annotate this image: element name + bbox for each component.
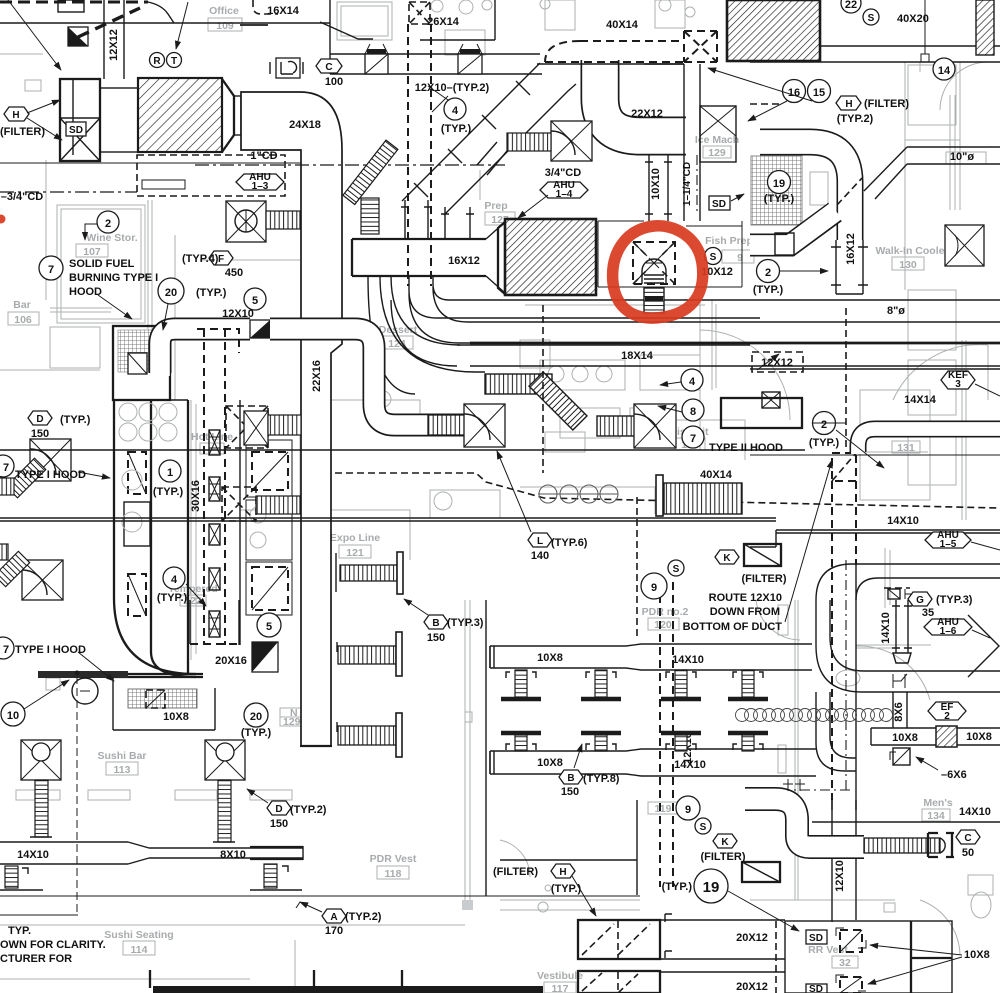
svg-text:(FILTER): (FILTER): [0, 126, 45, 138]
svg-text:B: B: [432, 618, 439, 629]
svg-text:(TYP.): (TYP.): [153, 486, 184, 498]
svg-text:SOLID FUEL: SOLID FUEL: [69, 258, 135, 270]
svg-text:S: S: [673, 564, 680, 575]
svg-text:20X16: 20X16: [215, 655, 247, 667]
svg-text:3/4"CD: 3/4"CD: [545, 167, 581, 179]
svg-text:OWN FOR CLARITY.: OWN FOR CLARITY.: [0, 939, 106, 951]
svg-text:20: 20: [165, 287, 177, 299]
svg-text:16X12: 16X12: [448, 255, 480, 267]
svg-text:130: 130: [899, 259, 917, 271]
svg-text:G: G: [916, 595, 924, 606]
svg-text:2: 2: [765, 267, 771, 279]
svg-text:SD: SD: [712, 199, 726, 210]
svg-text:8X6: 8X6: [893, 702, 905, 722]
svg-text:19: 19: [773, 178, 785, 190]
svg-text:D: D: [275, 804, 282, 815]
svg-text:14X10: 14X10: [959, 806, 991, 818]
svg-text:(TYP.): (TYP.): [196, 287, 227, 299]
svg-text:10X8: 10X8: [964, 949, 990, 961]
svg-text:Expo Line: Expo Line: [330, 532, 380, 544]
svg-text:(FILTER): (FILTER): [700, 851, 745, 863]
svg-text:10X8: 10X8: [163, 711, 189, 723]
svg-text:14X10: 14X10: [674, 759, 706, 771]
svg-text:5: 5: [252, 295, 258, 307]
svg-text:15: 15: [813, 87, 825, 99]
svg-text:2: 2: [944, 711, 950, 722]
svg-text:B: B: [567, 773, 574, 784]
svg-text:8"ø: 8"ø: [887, 305, 905, 317]
svg-text:1–3: 1–3: [252, 181, 269, 192]
svg-text:12X10–(TYP.2): 12X10–(TYP.2): [415, 82, 490, 94]
svg-text:22X12: 22X12: [631, 108, 663, 120]
svg-text:20X12: 20X12: [736, 981, 768, 993]
svg-text:16: 16: [788, 87, 800, 99]
svg-text:Walk-In Cooler: Walk-In Cooler: [875, 245, 948, 257]
svg-text:Wine Stor.: Wine Stor.: [86, 232, 137, 244]
svg-text:R: R: [153, 56, 161, 67]
svg-text:7: 7: [3, 462, 9, 474]
svg-text:40X20: 40X20: [897, 13, 929, 25]
svg-text:8X10: 8X10: [220, 849, 246, 861]
svg-text:4: 4: [689, 376, 696, 388]
svg-text:K: K: [723, 553, 731, 564]
svg-text:(TYP.): (TYP.): [809, 437, 840, 449]
svg-text:(TYP.): (TYP.): [551, 883, 582, 895]
svg-text:26X14: 26X14: [427, 16, 460, 28]
svg-text:3: 3: [955, 379, 961, 390]
svg-text:Prep: Prep: [484, 200, 507, 212]
svg-text:(TYP.2): (TYP.2): [345, 911, 382, 923]
svg-text:10X8: 10X8: [537, 652, 563, 664]
svg-text:129: 129: [708, 147, 726, 159]
svg-text:4: 4: [452, 105, 459, 117]
svg-text:BURNING TYPE I: BURNING TYPE I: [69, 272, 158, 284]
svg-text:SD: SD: [69, 125, 83, 136]
svg-text:150: 150: [561, 786, 579, 798]
svg-text:30X16: 30X16: [190, 480, 202, 512]
svg-text:121: 121: [346, 547, 364, 559]
svg-text:H: H: [845, 99, 852, 110]
svg-text:10X8: 10X8: [966, 731, 992, 743]
svg-text:1–4: 1–4: [556, 189, 573, 200]
svg-text:10: 10: [7, 710, 19, 722]
svg-text:1–1/4"CD: 1–1/4"CD: [682, 162, 693, 206]
svg-text:120: 120: [654, 619, 672, 631]
svg-text:19: 19: [703, 879, 720, 896]
svg-text:7: 7: [3, 644, 9, 656]
svg-text:50: 50: [962, 847, 974, 859]
svg-text:A: A: [330, 912, 337, 923]
svg-text:(TYP.): (TYP.): [157, 592, 188, 604]
svg-text:(TYP.8): (TYP.8): [583, 773, 620, 785]
svg-text:(TYP.2): (TYP.2): [290, 804, 327, 816]
svg-text:Vestibule: Vestibule: [537, 970, 583, 982]
svg-text:16X12: 16X12: [845, 233, 857, 265]
svg-text:(TYP.): (TYP.): [753, 284, 784, 296]
svg-text:7: 7: [48, 264, 54, 276]
svg-text:1"CD: 1"CD: [250, 150, 277, 162]
svg-text:–3/4"CD: –3/4"CD: [1, 191, 44, 203]
svg-text:S: S: [710, 252, 717, 263]
svg-text:113: 113: [114, 764, 131, 776]
svg-text:1–5: 1–5: [940, 539, 957, 550]
svg-text:12X12: 12X12: [108, 29, 120, 61]
svg-text:2: 2: [821, 419, 827, 431]
svg-text:(FILTER): (FILTER): [741, 573, 786, 585]
svg-text:C: C: [325, 62, 332, 73]
svg-text:109: 109: [216, 20, 234, 32]
svg-text:170: 170: [325, 925, 343, 937]
svg-text:C: C: [964, 833, 971, 844]
svg-text:10X10: 10X10: [650, 168, 662, 200]
svg-text:S: S: [700, 822, 707, 833]
svg-text:(TYP.2): (TYP.2): [837, 113, 874, 125]
svg-text:18X14: 18X14: [621, 350, 654, 362]
svg-text:16X14: 16X14: [267, 5, 300, 17]
svg-text:140: 140: [531, 550, 549, 562]
svg-text:(FILTER): (FILTER): [864, 98, 909, 110]
svg-text:10"ø: 10"ø: [950, 151, 974, 163]
svg-text:7: 7: [690, 433, 696, 445]
svg-text:40X14: 40X14: [606, 19, 639, 31]
svg-text:TYPE I HOOD: TYPE I HOOD: [15, 644, 86, 656]
svg-text:Dessert: Dessert: [379, 324, 418, 336]
svg-text:14X10: 14X10: [17, 849, 49, 861]
svg-text:SD: SD: [809, 933, 823, 944]
svg-text:117: 117: [552, 983, 569, 993]
svg-text:ROUTE 12X10: ROUTE 12X10: [709, 592, 782, 604]
svg-text:150: 150: [31, 428, 49, 440]
svg-text:14X14: 14X14: [904, 394, 937, 406]
svg-text:14: 14: [938, 65, 951, 77]
svg-text:14X10: 14X10: [672, 654, 704, 666]
svg-text:5: 5: [266, 621, 272, 633]
svg-text:40X14: 40X14: [700, 469, 733, 481]
svg-text:TYP.: TYP.: [8, 925, 31, 937]
svg-text:129: 129: [283, 716, 301, 728]
svg-text:L: L: [537, 536, 543, 547]
svg-text:PDR no.2: PDR no.2: [642, 606, 689, 618]
svg-text:12X10: 12X10: [222, 308, 254, 320]
svg-text:114: 114: [131, 944, 148, 956]
svg-text:S: S: [868, 13, 875, 24]
svg-text:150: 150: [427, 632, 445, 644]
svg-text:CTURER FOR: CTURER FOR: [0, 953, 72, 965]
svg-text:12X12: 12X12: [761, 357, 793, 369]
svg-text:1: 1: [167, 467, 173, 479]
svg-text:(TYP.4): (TYP.4): [182, 253, 219, 265]
svg-text:(TYP.): (TYP.): [241, 727, 272, 739]
svg-text:D: D: [36, 414, 43, 425]
svg-text:100: 100: [325, 76, 343, 88]
svg-text:(TYP.): (TYP.): [441, 123, 472, 135]
svg-text:(TYP.): (TYP.): [60, 414, 91, 426]
svg-text:K: K: [721, 837, 729, 848]
svg-text:(TYP.): (TYP.): [662, 881, 693, 893]
svg-text:22: 22: [845, 0, 857, 11]
svg-text:450: 450: [225, 267, 243, 279]
svg-text:1–6: 1–6: [940, 626, 957, 637]
svg-text:Ice Mach: Ice Mach: [695, 134, 739, 146]
svg-text:F: F: [218, 254, 224, 265]
svg-text:14X10: 14X10: [880, 612, 892, 644]
svg-text:118: 118: [385, 868, 402, 880]
svg-text:Bar: Bar: [13, 299, 31, 311]
svg-text:Fish Prep: Fish Prep: [705, 235, 753, 247]
svg-text:119: 119: [655, 803, 672, 815]
svg-text:Sushi Bar: Sushi Bar: [97, 750, 146, 762]
svg-text:20X12: 20X12: [736, 932, 768, 944]
svg-text:BOTTOM OF DUCT: BOTTOM OF DUCT: [683, 621, 783, 633]
svg-text:(TYP.3): (TYP.3): [936, 594, 973, 606]
svg-text:9: 9: [651, 582, 657, 594]
svg-text:4: 4: [171, 574, 178, 586]
svg-text:H: H: [559, 867, 566, 878]
svg-text:H: H: [12, 110, 19, 121]
svg-text:DOWN FROM: DOWN FROM: [710, 606, 780, 618]
svg-text:32: 32: [839, 957, 851, 969]
svg-text:134: 134: [927, 810, 945, 822]
svg-text:TYPE II HOOD: TYPE II HOOD: [709, 442, 783, 454]
svg-text:8: 8: [690, 406, 696, 418]
svg-text:131: 131: [897, 442, 915, 454]
svg-text:(TYP.): (TYP.): [764, 193, 795, 205]
svg-text:20: 20: [250, 711, 262, 723]
svg-text:HOOD: HOOD: [69, 286, 102, 298]
svg-text:Office: Office: [209, 5, 239, 17]
svg-text:106: 106: [14, 314, 32, 326]
svg-text:10X8: 10X8: [892, 732, 918, 744]
svg-text:24X18: 24X18: [289, 119, 321, 131]
svg-text:35: 35: [922, 607, 934, 619]
svg-text:22X16: 22X16: [311, 360, 323, 392]
svg-text:Sushi Seating: Sushi Seating: [104, 929, 173, 941]
svg-text:T: T: [171, 56, 177, 67]
svg-text:9: 9: [685, 804, 691, 816]
svg-text:(TYP.3): (TYP.3): [447, 617, 484, 629]
svg-text:12X10: 12X10: [834, 860, 846, 892]
svg-text:14X10: 14X10: [887, 515, 919, 527]
svg-text:SD: SD: [809, 984, 823, 993]
svg-text:150: 150: [270, 818, 288, 830]
svg-text:TYPE I HOOD: TYPE I HOOD: [15, 469, 86, 481]
svg-text:PDR Vest: PDR Vest: [370, 853, 417, 865]
svg-text:Men's: Men's: [923, 797, 952, 809]
svg-text:–6X6: –6X6: [941, 769, 967, 781]
svg-text:(FILTER): (FILTER): [493, 866, 538, 878]
svg-text:107: 107: [83, 246, 101, 258]
svg-text:(TYP.6): (TYP.6): [551, 537, 588, 549]
svg-text:2: 2: [105, 218, 111, 230]
svg-text:10X8: 10X8: [537, 757, 563, 769]
